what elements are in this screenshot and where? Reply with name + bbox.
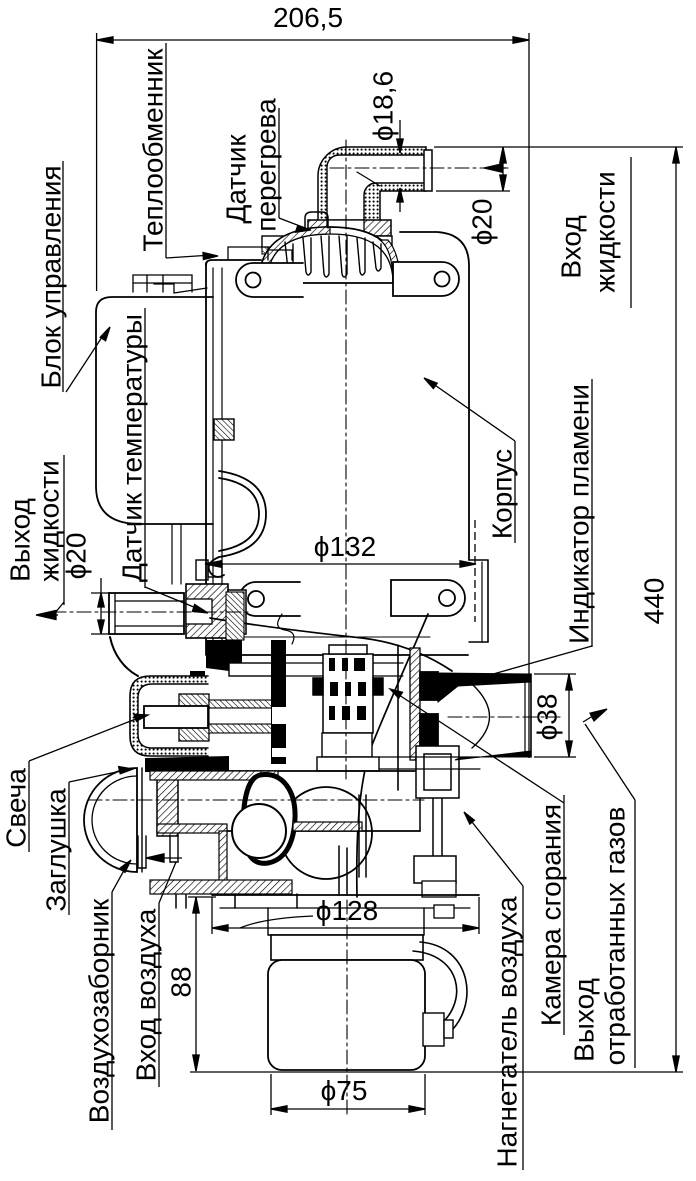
svg-text:Вход: Вход xyxy=(555,215,586,278)
svg-text:отработанных газов: отработанных газов xyxy=(599,807,630,1066)
svg-text:жидкости: жидкости xyxy=(33,460,64,581)
svg-text:Камера сгорания: Камера сгорания xyxy=(535,804,566,1026)
svg-text:ϕ128: ϕ128 xyxy=(316,895,378,926)
svg-text:Датчик: Датчик xyxy=(220,134,251,224)
svg-text:440: 440 xyxy=(638,578,669,625)
svg-text:Индикатор пламени: Индикатор пламени xyxy=(563,384,594,644)
svg-text:перегрева: перегрева xyxy=(250,98,281,232)
svg-text:ϕ132: ϕ132 xyxy=(314,531,376,562)
svg-text:206,5: 206,5 xyxy=(273,2,343,33)
svg-text:Свеча: Свеча xyxy=(0,768,31,848)
svg-text:Воздухозаборник: Воздухозаборник xyxy=(83,898,114,1123)
svg-text:ϕ20: ϕ20 xyxy=(60,533,91,580)
svg-text:Заглушка: Заглушка xyxy=(40,788,71,912)
svg-text:Корпус: Корпус xyxy=(486,449,517,539)
svg-text:ϕ18,6: ϕ18,6 xyxy=(367,71,398,141)
svg-text:Выход: Выход xyxy=(568,978,599,1062)
svg-text:Блок управления: Блок управления xyxy=(35,165,66,388)
svg-text:Нагнетатель воздуха: Нагнетатель воздуха xyxy=(491,896,522,1168)
svg-text:ϕ38: ϕ38 xyxy=(531,694,562,741)
svg-text:ϕ20: ϕ20 xyxy=(466,199,497,246)
svg-text:Вход воздуха: Вход воздуха xyxy=(130,908,161,1081)
svg-text:ϕ75: ϕ75 xyxy=(321,1075,368,1106)
svg-text:Теплообменник: Теплообменник xyxy=(137,48,168,252)
svg-text:жидкости: жидкости xyxy=(589,171,620,292)
svg-text:Выход: Выход xyxy=(4,498,35,582)
svg-text:Датчик температуры: Датчик температуры xyxy=(116,314,147,582)
svg-text:88: 88 xyxy=(165,966,196,997)
